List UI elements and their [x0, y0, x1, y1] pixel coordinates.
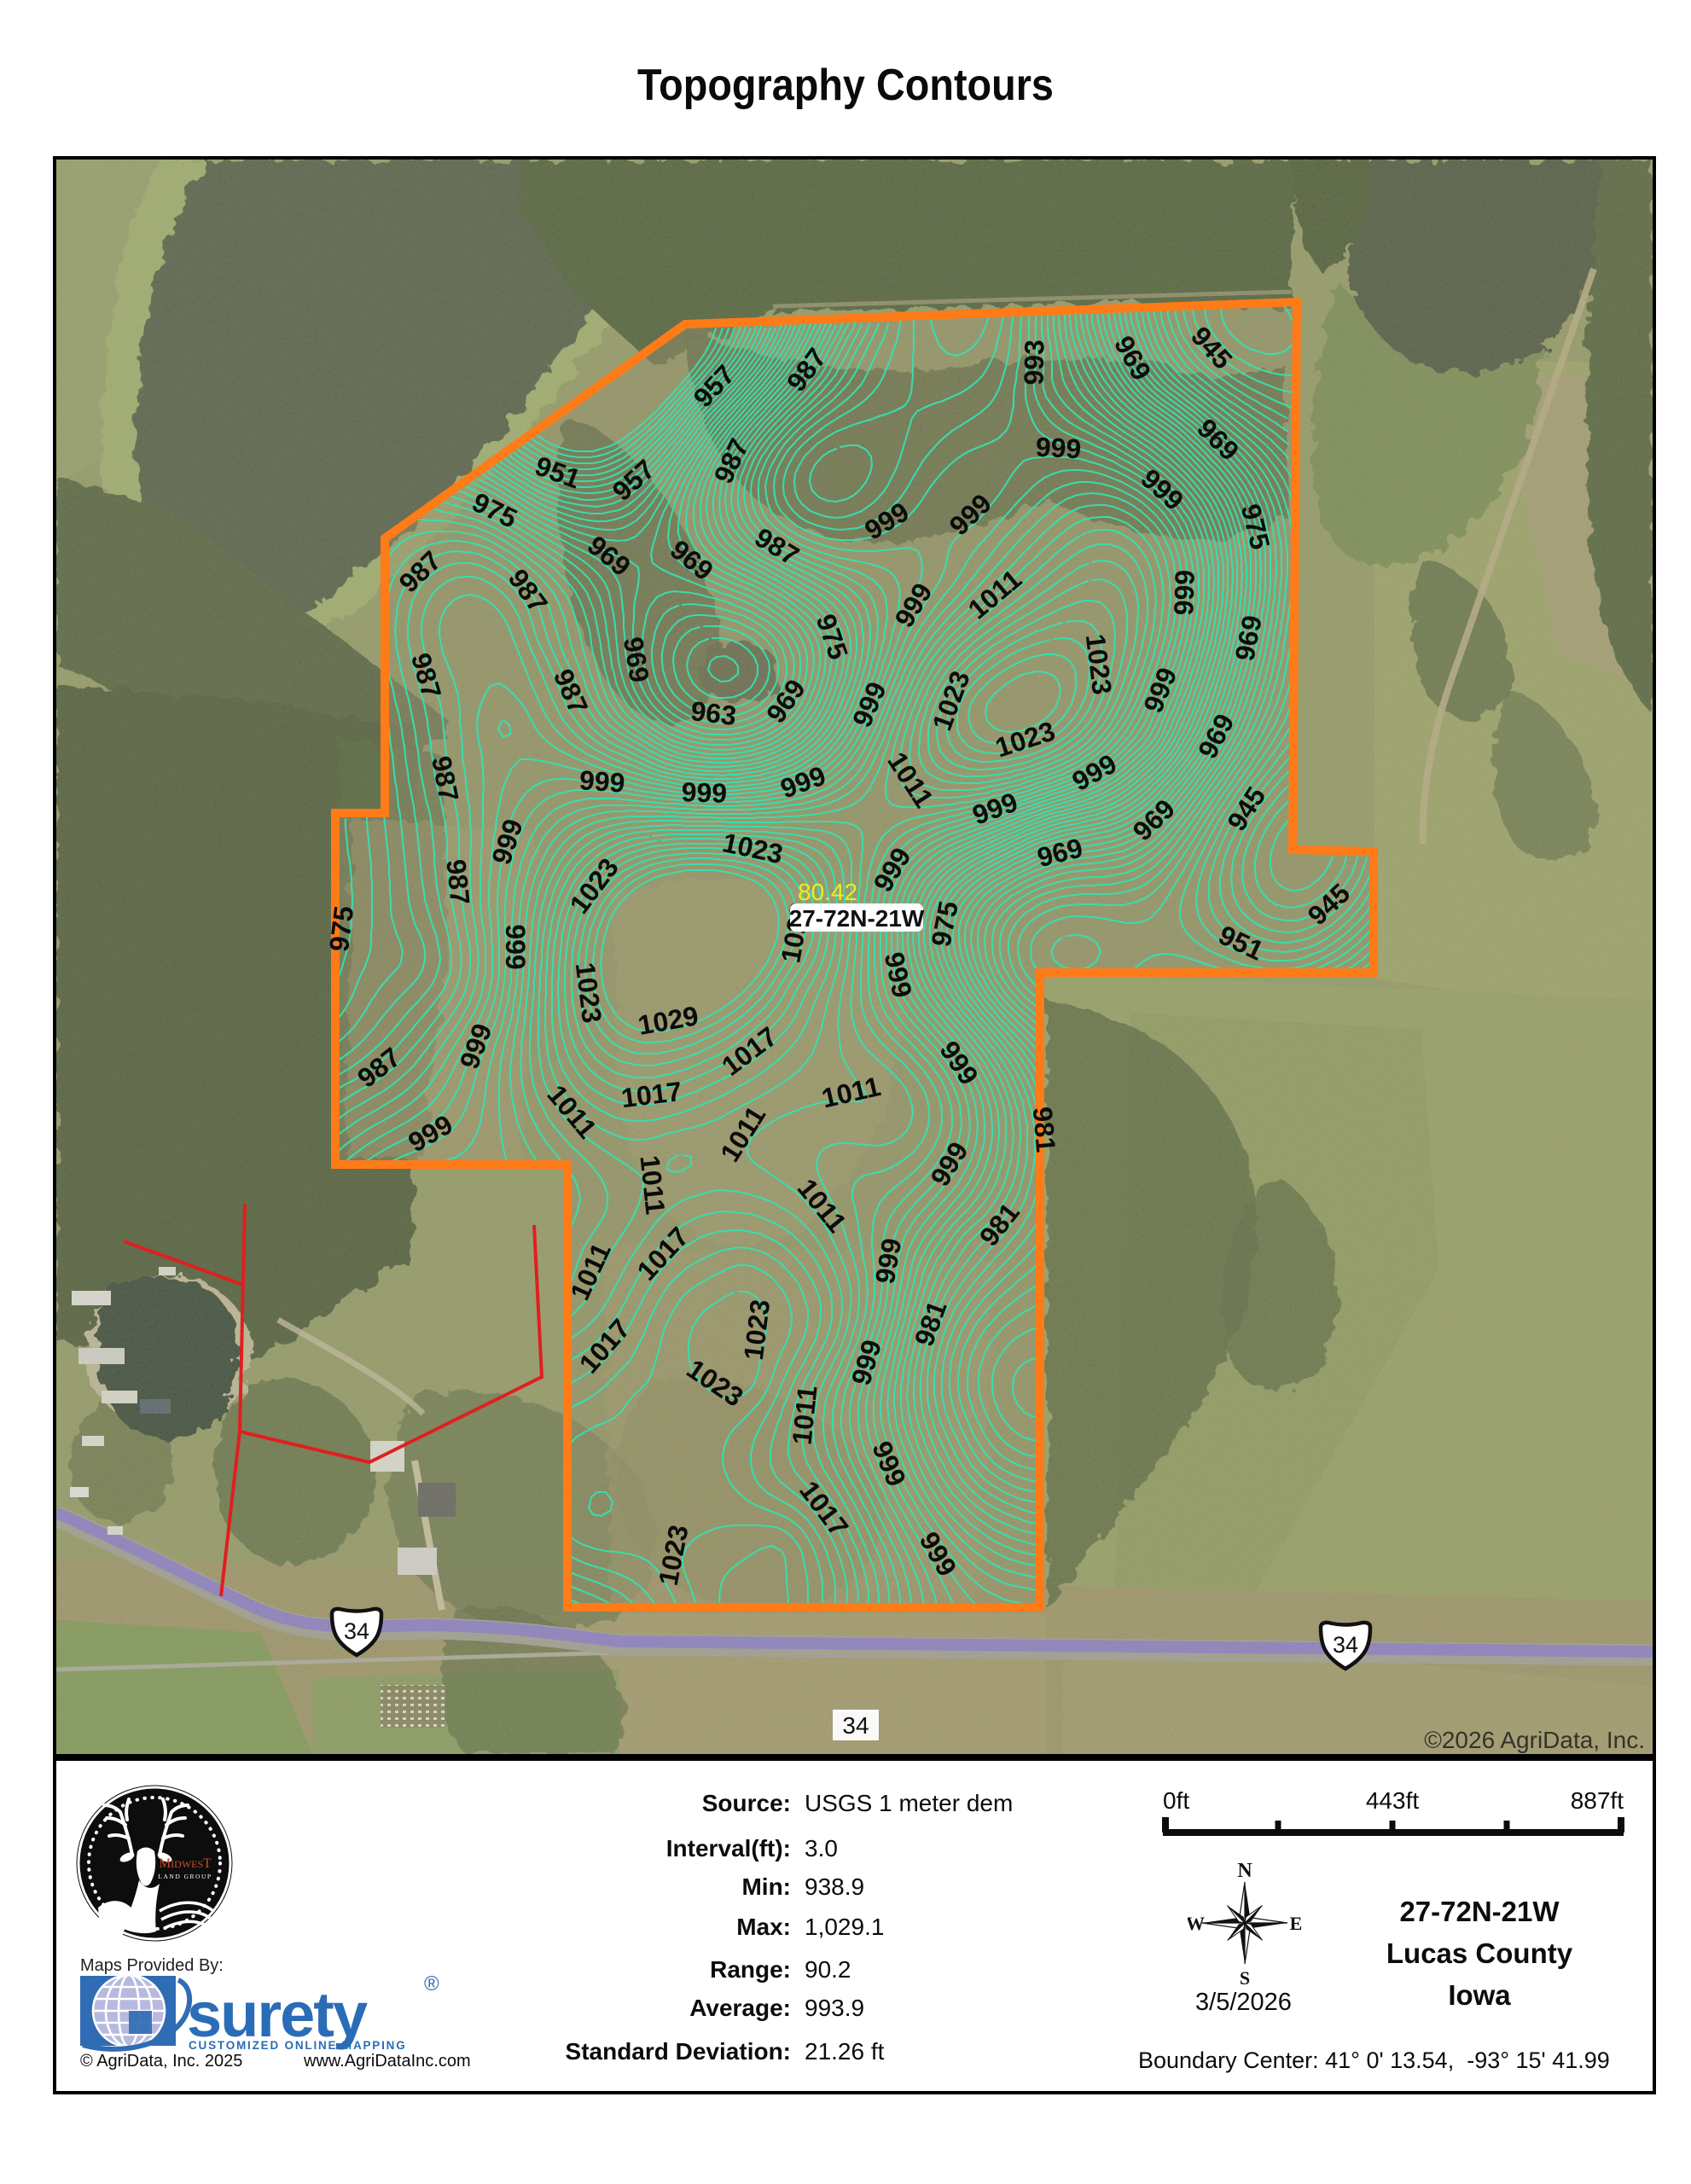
- svg-text:N: N: [1237, 1862, 1252, 1882]
- svg-text:27-72N-21W: 27-72N-21W: [789, 905, 925, 932]
- svg-text:80.42: 80.42: [798, 879, 857, 905]
- svg-text:999: 999: [1035, 432, 1082, 465]
- svg-text:MIDWEST: MIDWEST: [159, 1856, 212, 1871]
- svg-text:E: E: [1290, 1913, 1303, 1934]
- svg-text:975: 975: [323, 904, 359, 953]
- svg-text:S: S: [1240, 1967, 1250, 1989]
- svg-text:993: 993: [1019, 340, 1050, 386]
- svg-text:999: 999: [500, 924, 531, 969]
- svg-text:999: 999: [578, 764, 626, 799]
- svg-text:34: 34: [842, 1712, 869, 1739]
- svg-text:34: 34: [344, 1618, 369, 1644]
- svg-text:®: ®: [424, 1972, 439, 1995]
- svg-text:443ft: 443ft: [1366, 1787, 1419, 1814]
- svg-text:981: 981: [1027, 1106, 1062, 1153]
- svg-text:©2026 AgriData, Inc.: ©2026 AgriData, Inc.: [1424, 1727, 1645, 1753]
- svg-text:1011: 1011: [787, 1384, 823, 1446]
- svg-text:LAND GROUP: LAND GROUP: [158, 1873, 212, 1880]
- svg-text:999: 999: [681, 776, 728, 809]
- svg-text:1011: 1011: [634, 1153, 671, 1216]
- svg-text:W: W: [1188, 1913, 1205, 1934]
- svg-text:887ft: 887ft: [1571, 1787, 1624, 1814]
- svg-text:963: 963: [689, 695, 738, 731]
- svg-text:987: 987: [440, 857, 475, 906]
- svg-text:0ft: 0ft: [1163, 1787, 1189, 1814]
- svg-text:34: 34: [1333, 1632, 1358, 1658]
- svg-text:CUSTOMIZED ONLINE MAPPING: CUSTOMIZED ONLINE MAPPING: [189, 2039, 407, 2052]
- svg-text:999: 999: [1168, 569, 1200, 616]
